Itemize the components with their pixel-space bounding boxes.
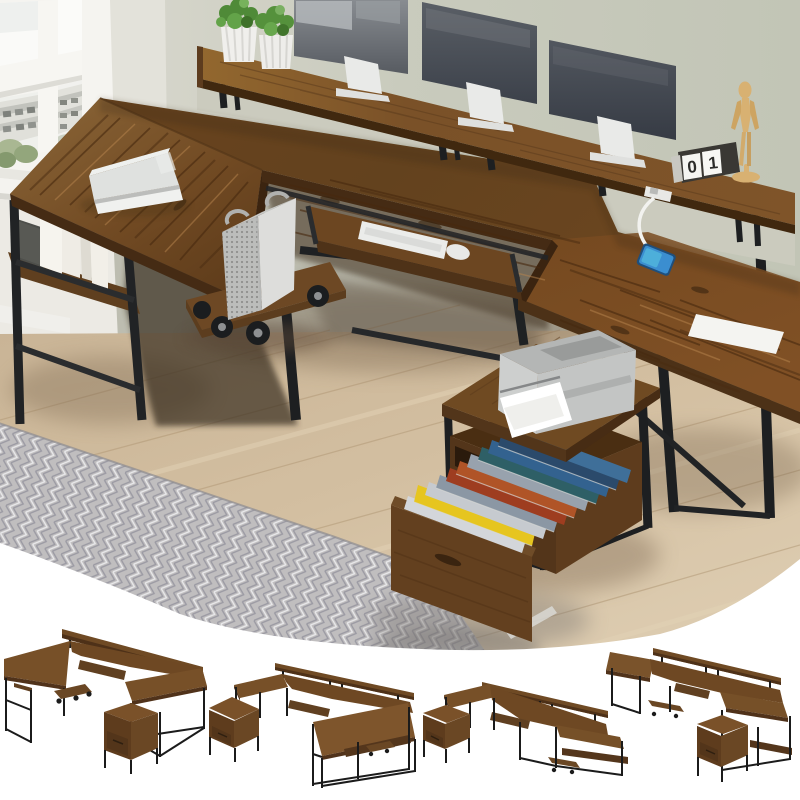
svg-text:0: 0 bbox=[686, 157, 697, 177]
svg-text:1: 1 bbox=[707, 153, 718, 173]
